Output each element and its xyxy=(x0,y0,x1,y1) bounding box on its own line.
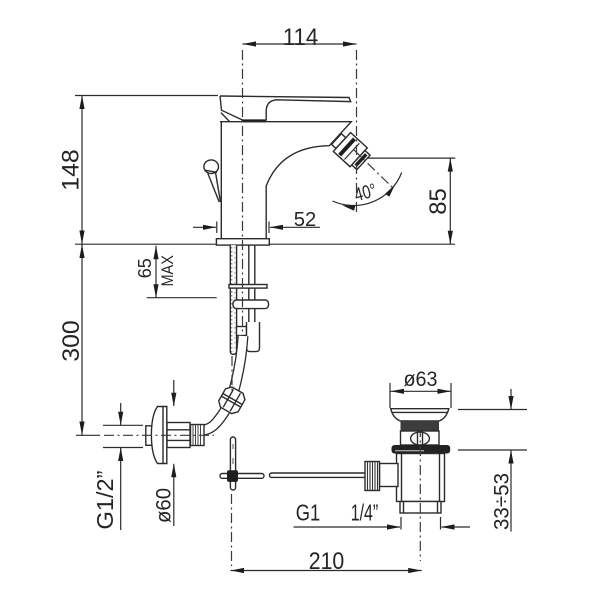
svg-text:ø60: ø60 xyxy=(153,488,176,523)
svg-text:G1/2”: G1/2” xyxy=(92,471,118,530)
svg-text:85: 85 xyxy=(425,188,452,215)
svg-text:G1: G1 xyxy=(296,500,321,526)
svg-text:210: 210 xyxy=(309,548,345,575)
svg-text:148: 148 xyxy=(58,149,85,191)
svg-text:300: 300 xyxy=(58,320,85,362)
svg-text:33÷53: 33÷53 xyxy=(491,473,514,530)
svg-text:52: 52 xyxy=(294,208,317,231)
svg-text:114: 114 xyxy=(283,24,319,51)
svg-text:MAX: MAX xyxy=(159,255,177,287)
svg-text:1/4”: 1/4” xyxy=(351,500,379,526)
svg-text:ø63: ø63 xyxy=(404,368,438,391)
svg-text:65: 65 xyxy=(135,258,155,278)
